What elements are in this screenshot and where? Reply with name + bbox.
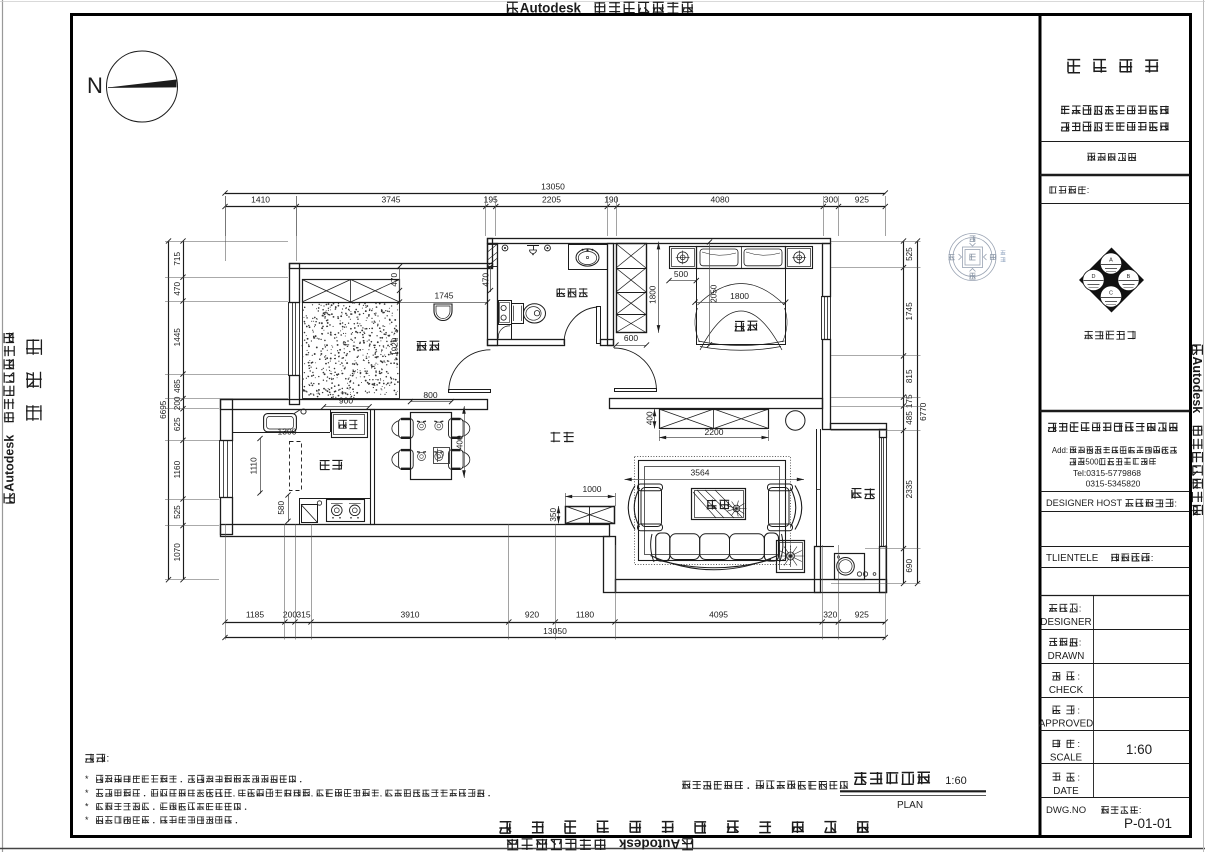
svg-text:400: 400 (455, 435, 464, 449)
svg-text:6695: 6695 (159, 400, 168, 419)
svg-text:900: 900 (339, 396, 353, 406)
svg-text:1070: 1070 (173, 543, 182, 562)
svg-text:*: * (85, 788, 89, 798)
svg-text:P-01-01: P-01-01 (1124, 816, 1172, 831)
svg-text:715: 715 (173, 252, 182, 266)
svg-text:815: 815 (905, 369, 914, 383)
svg-text:Autodesk: Autodesk (2, 435, 16, 492)
svg-text:TLIENTELE: TLIENTELE (1046, 553, 1099, 564)
svg-text::: : (1139, 805, 1142, 815)
svg-text:N: N (87, 73, 103, 98)
svg-text:925: 925 (855, 195, 869, 205)
svg-text::: : (1077, 705, 1080, 716)
svg-text:2050: 2050 (710, 284, 719, 303)
svg-text:200: 200 (283, 610, 297, 620)
svg-text:400: 400 (645, 411, 654, 425)
svg-text:1000: 1000 (583, 484, 602, 494)
svg-text:2200: 2200 (705, 427, 724, 437)
svg-text:580: 580 (277, 501, 286, 515)
svg-text::: : (1079, 637, 1082, 648)
svg-text:4080: 4080 (711, 195, 730, 205)
svg-text:2335: 2335 (905, 480, 914, 499)
svg-text:,: , (233, 788, 235, 798)
svg-text::: : (106, 753, 109, 765)
svg-text::: : (1077, 739, 1080, 750)
svg-text:Add:: Add: (1052, 446, 1068, 455)
svg-text:925: 925 (855, 610, 869, 620)
svg-text:1:60: 1:60 (945, 775, 966, 787)
svg-text:1:60: 1:60 (1126, 742, 1152, 757)
svg-text:*: * (85, 802, 89, 812)
svg-text:1300: 1300 (278, 427, 297, 437)
svg-text:*: * (85, 774, 89, 784)
svg-text:1800: 1800 (648, 285, 657, 304)
svg-text:2205: 2205 (542, 195, 561, 205)
svg-text:1445: 1445 (173, 328, 182, 347)
svg-text:,: , (311, 788, 313, 798)
svg-text:DESIGNER HOST: DESIGNER HOST (1046, 498, 1122, 508)
svg-text:3745: 3745 (382, 195, 401, 205)
svg-text:,: , (380, 788, 382, 798)
svg-text:350: 350 (549, 508, 558, 522)
svg-text:CHECK: CHECK (1049, 685, 1084, 696)
svg-text:APPROVED: APPROVED (1039, 719, 1093, 730)
svg-text:600: 600 (624, 333, 638, 343)
svg-text:500: 500 (674, 269, 688, 279)
svg-text:300: 300 (824, 195, 838, 205)
svg-text:1160: 1160 (173, 460, 182, 478)
svg-text:Autodesk: Autodesk (618, 837, 680, 852)
svg-text::: : (1077, 772, 1080, 783)
svg-text:525: 525 (173, 505, 182, 519)
svg-text:DESIGNER: DESIGNER (1040, 617, 1091, 628)
svg-text:1110: 1110 (249, 457, 258, 474)
svg-text:175: 175 (905, 394, 914, 408)
svg-text:690: 690 (905, 559, 914, 573)
svg-text:*: * (85, 815, 89, 825)
svg-text:1185: 1185 (246, 610, 265, 620)
svg-text:485: 485 (173, 379, 182, 393)
svg-text:A: A (1109, 258, 1113, 264)
svg-text::: : (1151, 553, 1154, 564)
svg-text:D: D (1092, 274, 1096, 280)
svg-text:800: 800 (423, 390, 437, 400)
svg-text:DWG.NO: DWG.NO (1046, 805, 1086, 816)
svg-text:200: 200 (173, 396, 182, 410)
svg-text:1800: 1800 (730, 291, 749, 301)
svg-text:470: 470 (173, 282, 182, 296)
svg-text:500: 500 (1085, 457, 1099, 466)
svg-text:Tel:0315-5779868: Tel:0315-5779868 (1073, 468, 1141, 478)
svg-text:PLAN: PLAN (897, 800, 923, 811)
svg-text:470: 470 (481, 273, 490, 287)
svg-text::: : (1079, 603, 1082, 614)
svg-text:DATE: DATE (1053, 786, 1079, 797)
svg-text:1410: 1410 (251, 195, 270, 205)
svg-text:3910: 3910 (401, 610, 420, 620)
svg-text::: : (1174, 497, 1177, 508)
svg-text:920: 920 (525, 610, 539, 620)
svg-text:525: 525 (905, 247, 914, 261)
svg-text:625: 625 (173, 417, 182, 431)
svg-text::: : (1087, 185, 1090, 195)
svg-text:4095: 4095 (709, 610, 728, 620)
svg-text:470: 470 (390, 273, 399, 287)
svg-text:0315-5345820: 0315-5345820 (1086, 479, 1141, 489)
svg-text:3564: 3564 (691, 468, 710, 478)
svg-text:SCALE: SCALE (1050, 753, 1083, 764)
svg-text:Autodesk: Autodesk (1190, 356, 1204, 413)
svg-text:C: C (1109, 291, 1113, 297)
svg-text:6770: 6770 (919, 402, 928, 421)
svg-text:320: 320 (823, 610, 837, 620)
svg-text:1745: 1745 (435, 291, 454, 301)
svg-text:485: 485 (905, 411, 914, 425)
svg-text::: : (1077, 671, 1080, 682)
svg-text:315: 315 (296, 610, 310, 620)
svg-text:1180: 1180 (576, 610, 595, 620)
svg-text:1920: 1920 (391, 337, 400, 356)
svg-text:DRAWN: DRAWN (1048, 651, 1085, 662)
svg-text:13050: 13050 (541, 182, 565, 192)
svg-text:13050: 13050 (543, 626, 567, 636)
svg-text:1745: 1745 (905, 302, 914, 321)
svg-text:B: B (1127, 274, 1131, 280)
